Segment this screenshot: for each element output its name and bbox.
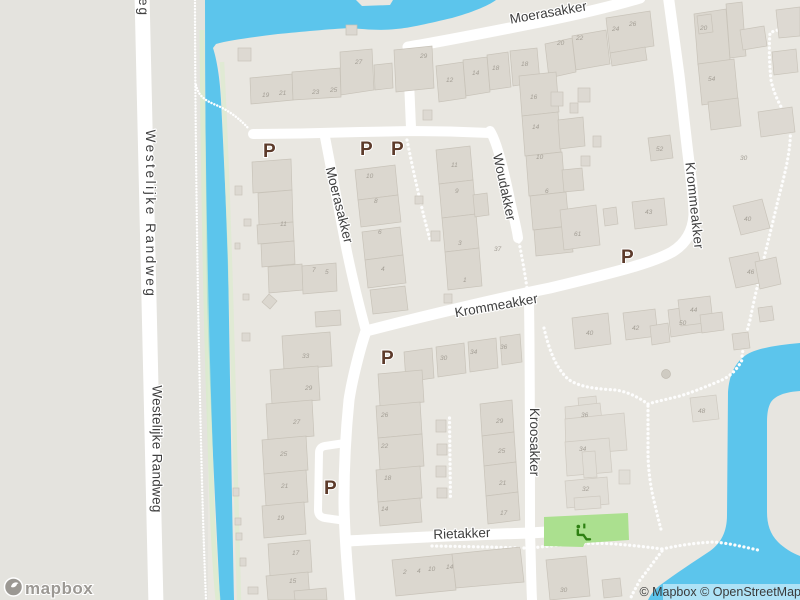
svg-text:14: 14 <box>381 506 389 513</box>
svg-text:P: P <box>324 478 337 499</box>
svg-text:36: 36 <box>500 344 508 351</box>
svg-text:32: 32 <box>582 486 590 493</box>
svg-text:P: P <box>360 139 373 160</box>
svg-text:37: 37 <box>494 246 502 253</box>
svg-text:26: 26 <box>628 21 637 28</box>
svg-text:10: 10 <box>366 173 374 180</box>
svg-text:34: 34 <box>470 349 478 356</box>
svg-text:Kroosakker: Kroosakker <box>527 408 542 477</box>
svg-text:54: 54 <box>708 76 716 83</box>
svg-text:mapbox: mapbox <box>25 579 93 598</box>
svg-text:24: 24 <box>611 26 620 33</box>
svg-text:eg: eg <box>136 0 151 17</box>
svg-text:26: 26 <box>380 412 389 419</box>
svg-text:40: 40 <box>586 330 594 337</box>
svg-text:20: 20 <box>699 25 708 32</box>
svg-text:29: 29 <box>419 53 428 60</box>
svg-text:10: 10 <box>536 154 544 161</box>
svg-text:19: 19 <box>277 515 285 522</box>
svg-text:14: 14 <box>532 124 540 131</box>
svg-text:30: 30 <box>560 587 568 594</box>
svg-text:30: 30 <box>440 355 448 362</box>
svg-text:42: 42 <box>632 325 640 332</box>
svg-text:Westelijke Randweg: Westelijke Randweg <box>150 385 165 512</box>
svg-text:21: 21 <box>280 483 289 490</box>
svg-text:12: 12 <box>446 77 454 84</box>
svg-text:29: 29 <box>495 418 504 425</box>
svg-text:4: 4 <box>381 266 385 273</box>
svg-text:© Mapbox © OpenStreetMap: © Mapbox © OpenStreetMap <box>639 585 800 599</box>
svg-text:43: 43 <box>645 209 653 216</box>
svg-text:11: 11 <box>451 162 458 169</box>
svg-text:6: 6 <box>378 229 382 236</box>
svg-text:34: 34 <box>579 446 587 453</box>
svg-text:9: 9 <box>455 188 459 195</box>
svg-text:1: 1 <box>463 277 467 284</box>
svg-text:7: 7 <box>312 267 316 274</box>
svg-text:6: 6 <box>545 188 549 195</box>
svg-text:61: 61 <box>574 231 582 238</box>
svg-text:17: 17 <box>292 550 300 557</box>
svg-text:36: 36 <box>581 412 589 419</box>
svg-text:50: 50 <box>679 320 687 327</box>
svg-text:27: 27 <box>354 59 363 66</box>
svg-text:16: 16 <box>530 94 538 101</box>
svg-text:14: 14 <box>472 70 480 77</box>
svg-text:14: 14 <box>446 564 454 571</box>
svg-text:52: 52 <box>656 146 664 153</box>
svg-text:15: 15 <box>289 578 297 585</box>
svg-text:25: 25 <box>329 87 338 94</box>
svg-text:18: 18 <box>521 61 529 68</box>
svg-text:25: 25 <box>279 451 288 458</box>
svg-text:23: 23 <box>311 89 320 96</box>
svg-text:Westelijke Randweg: Westelijke Randweg <box>143 130 158 299</box>
svg-text:P: P <box>391 139 404 160</box>
svg-text:11: 11 <box>280 221 287 228</box>
svg-text:P: P <box>621 247 634 268</box>
svg-text:18: 18 <box>492 65 500 72</box>
svg-text:10: 10 <box>428 566 436 573</box>
svg-text:40: 40 <box>744 216 752 223</box>
svg-text:20: 20 <box>556 40 565 47</box>
svg-text:Rietakker: Rietakker <box>433 525 491 542</box>
svg-text:22: 22 <box>575 35 584 42</box>
svg-text:30: 30 <box>740 155 748 162</box>
svg-text:21: 21 <box>498 480 507 487</box>
svg-text:19: 19 <box>262 92 270 99</box>
svg-text:3: 3 <box>458 240 462 247</box>
svg-text:25: 25 <box>497 448 506 455</box>
svg-text:27: 27 <box>292 419 301 426</box>
svg-text:4: 4 <box>417 568 421 575</box>
svg-text:22: 22 <box>380 443 389 450</box>
svg-text:P: P <box>263 141 276 162</box>
svg-text:44: 44 <box>690 307 698 314</box>
svg-text:P: P <box>381 348 394 369</box>
svg-text:5: 5 <box>325 269 329 276</box>
svg-text:17: 17 <box>500 510 508 517</box>
svg-text:21: 21 <box>278 90 287 97</box>
svg-text:2: 2 <box>402 569 407 576</box>
svg-text:29: 29 <box>304 385 313 392</box>
svg-text:8: 8 <box>374 198 378 205</box>
svg-text:18: 18 <box>384 475 392 482</box>
svg-text:48: 48 <box>698 408 706 415</box>
svg-text:33: 33 <box>302 353 310 360</box>
svg-text:46: 46 <box>747 269 755 276</box>
